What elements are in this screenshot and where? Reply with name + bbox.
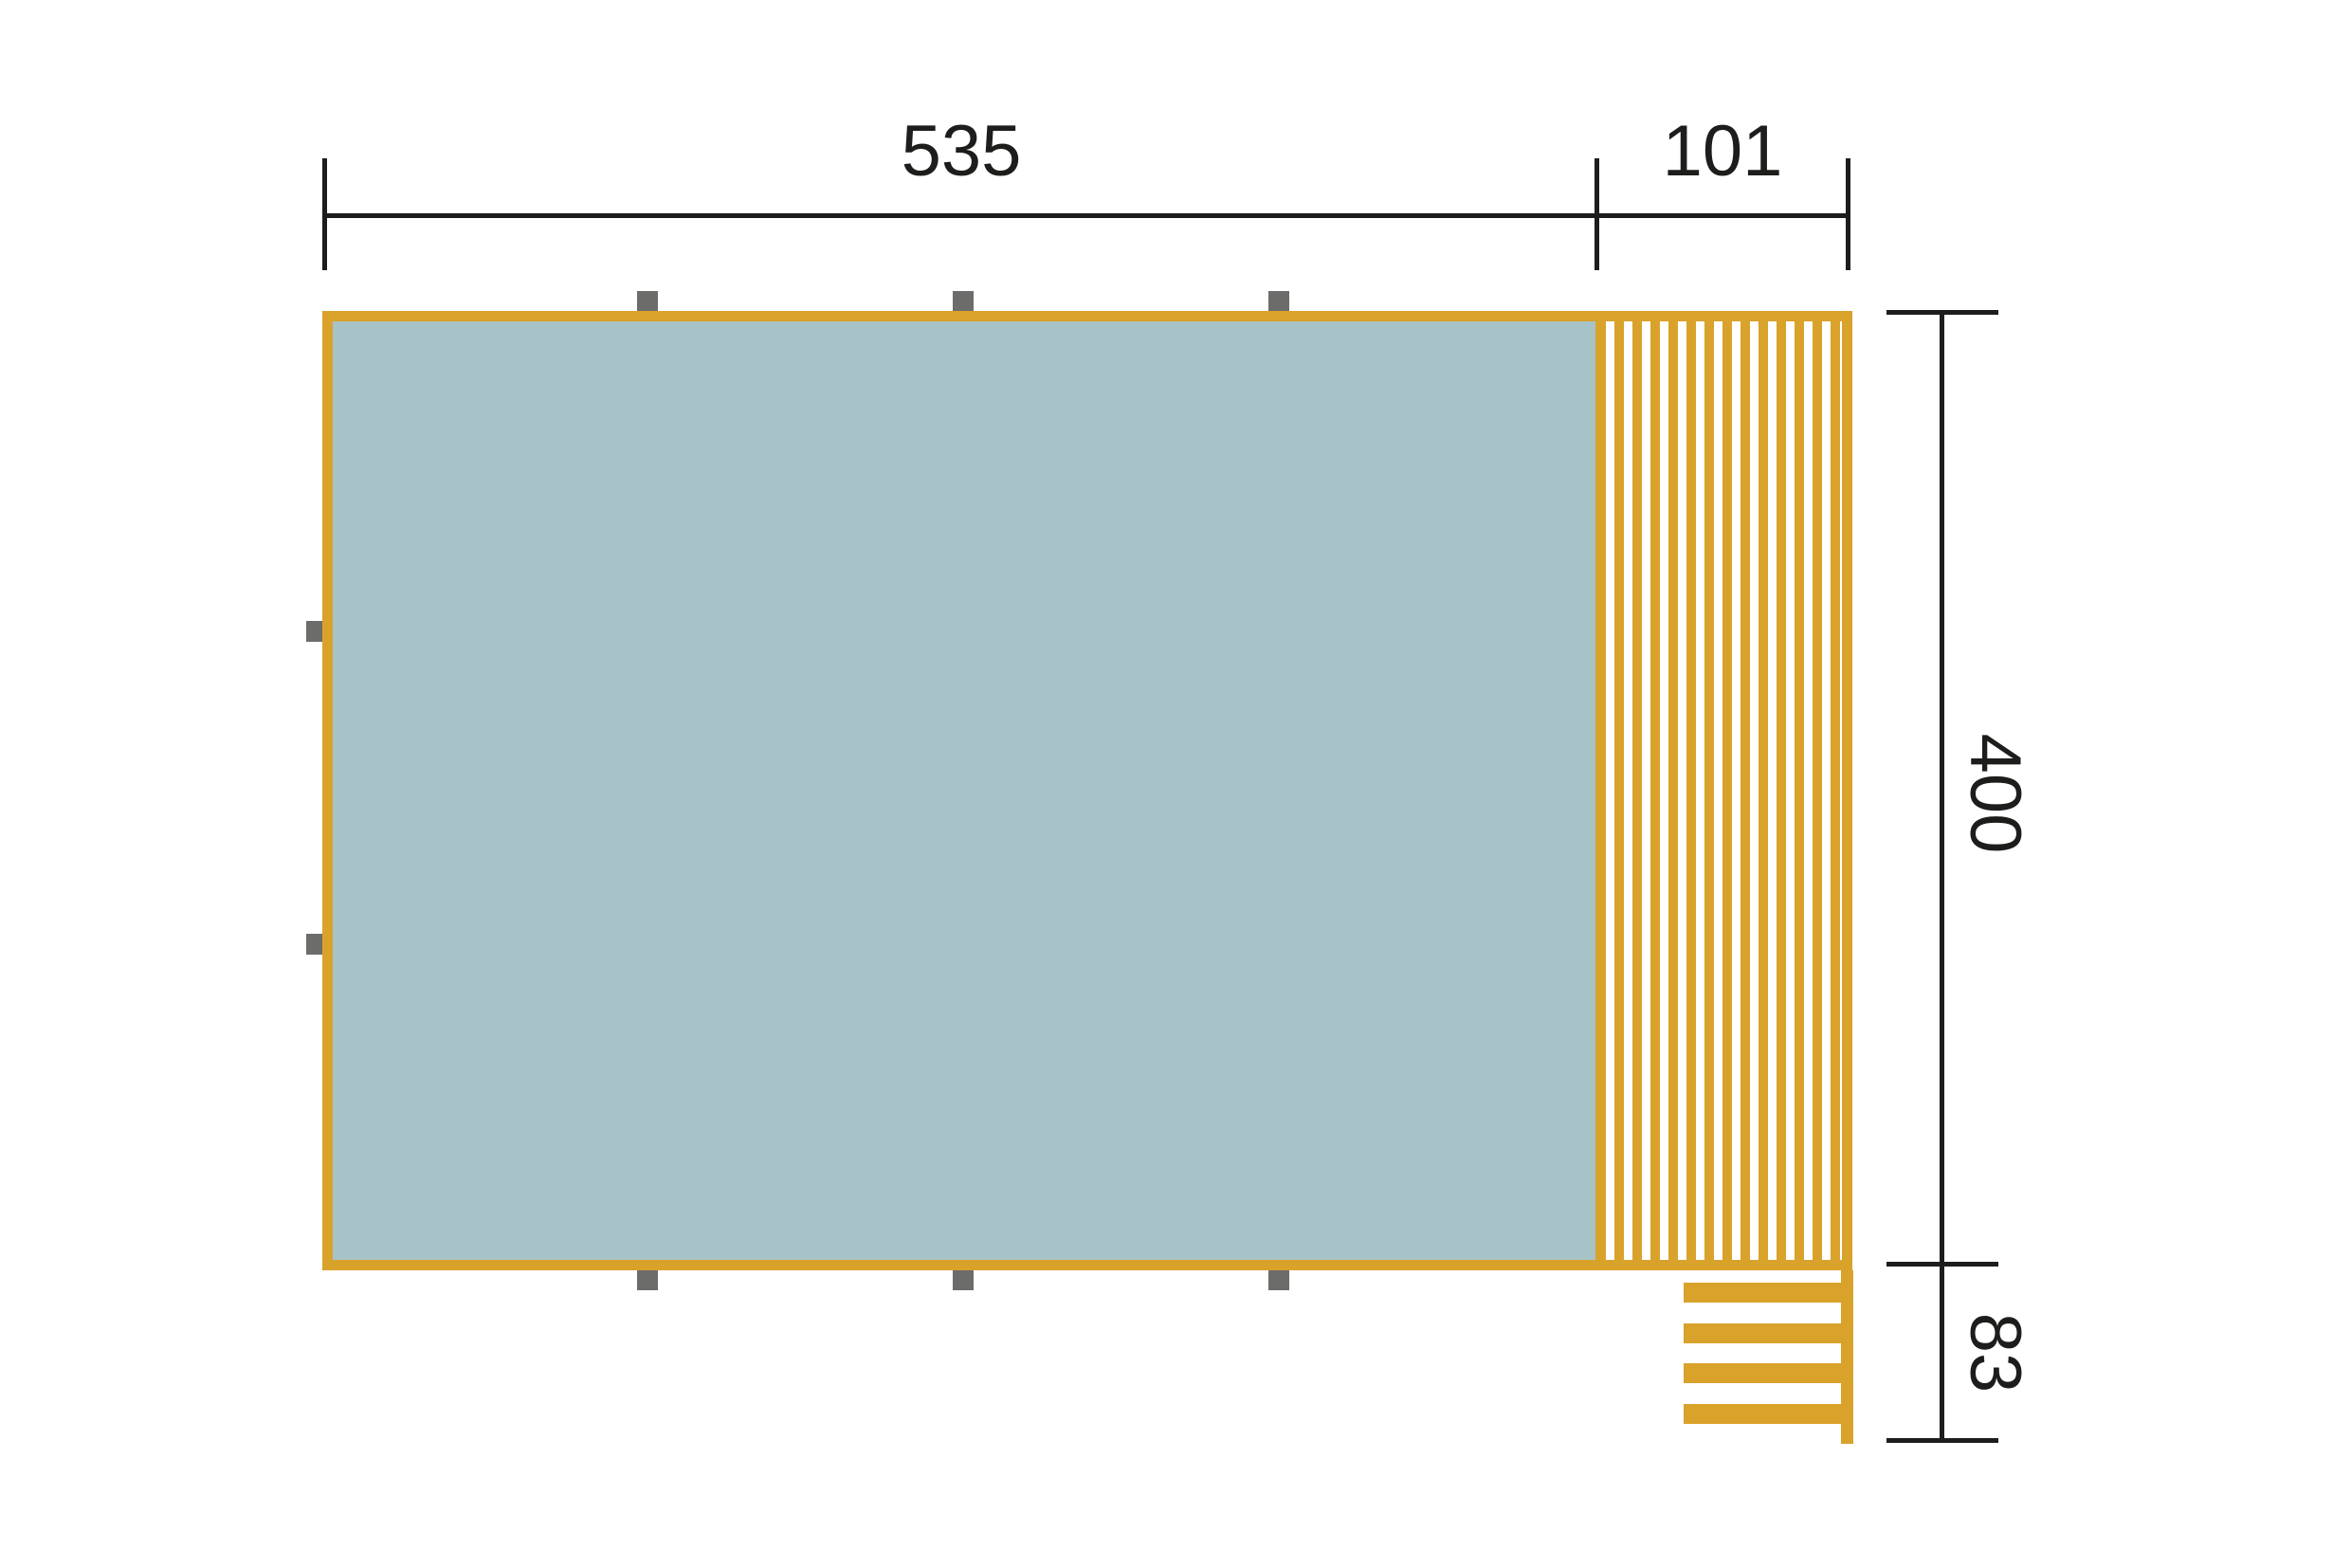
post-icon [637,1270,658,1290]
deck-slat [1704,321,1714,1260]
deck-slat [1831,321,1840,1260]
post-icon [306,621,322,642]
dimension-tick-middle [1595,158,1599,270]
post-icon [306,934,322,955]
dimension-tick-right [1846,158,1850,270]
stair-step [1684,1323,1841,1343]
dimension-tick-left [322,158,327,270]
deck-slat [1777,321,1786,1260]
deck-slat [1813,321,1822,1260]
post-icon [1268,291,1289,311]
stair-step [1684,1283,1841,1303]
post-icon [637,291,658,311]
dimension-label-height: 400 [1959,734,2031,854]
post-icon [953,1270,974,1290]
deck-slat [1632,321,1642,1260]
deck-slat [1759,321,1768,1260]
dimension-line-right [1940,313,1944,1441]
interior-floor [333,321,1595,1260]
deck-slat [1740,321,1750,1260]
post-icon [1268,1270,1289,1290]
dimension-label-deck-width: 101 [1663,116,1783,188]
post-icon [953,291,974,311]
deck-slat [1614,321,1624,1260]
floor-plan-canvas: 535 101 400 83 [0,0,2351,1568]
stair-step [1684,1363,1841,1383]
deck-slat [1650,321,1660,1260]
deck-slat [1795,321,1804,1260]
dimension-line-top [325,213,1849,218]
deck-slat [1668,321,1678,1260]
deck-slat [1722,321,1732,1260]
stair-stringer [1841,1270,1853,1444]
deck-slat [1686,321,1696,1260]
dimension-label-stairs: 83 [1959,1313,2031,1394]
dimension-tick-bottom [1886,1438,1998,1443]
stair-step [1684,1404,1841,1424]
dimension-tick-top [1886,310,1998,315]
dimension-label-main-width: 535 [902,116,1022,188]
dimension-tick-mid [1886,1262,1998,1267]
